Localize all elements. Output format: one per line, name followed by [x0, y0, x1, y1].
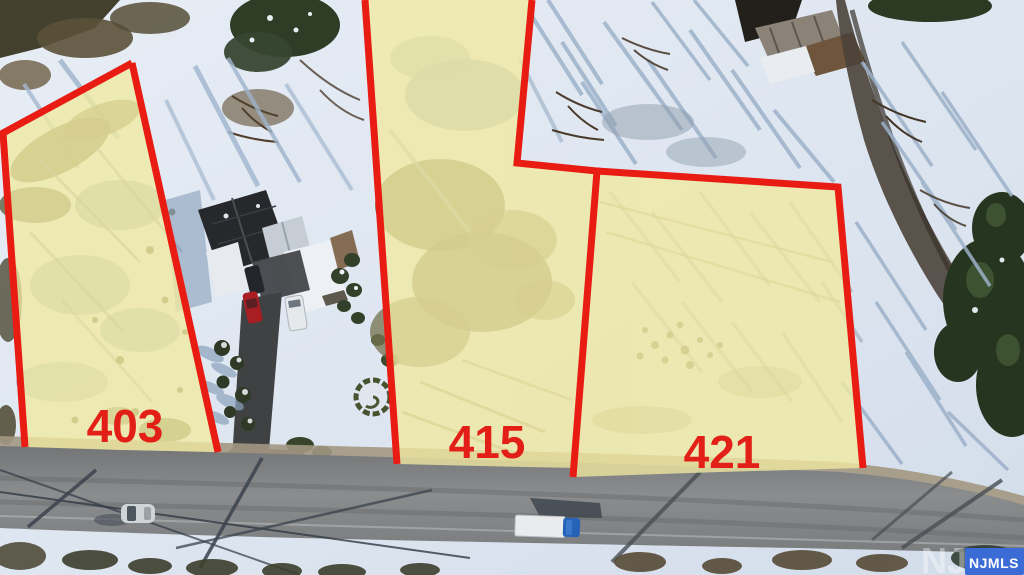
semi-truck	[515, 515, 581, 538]
lot-415-label: 415	[449, 416, 526, 468]
suv-on-road	[121, 504, 155, 523]
aerial-photo: 403 415 421 NJMLS NJMLS	[0, 0, 1024, 575]
lot-403-label: 403	[87, 400, 164, 452]
lot-421-label: 421	[684, 426, 761, 478]
spiral-garden	[356, 380, 390, 414]
njmls-watermark-badge: NJMLS	[965, 548, 1024, 575]
njmls-badge-text: NJMLS	[969, 555, 1019, 571]
